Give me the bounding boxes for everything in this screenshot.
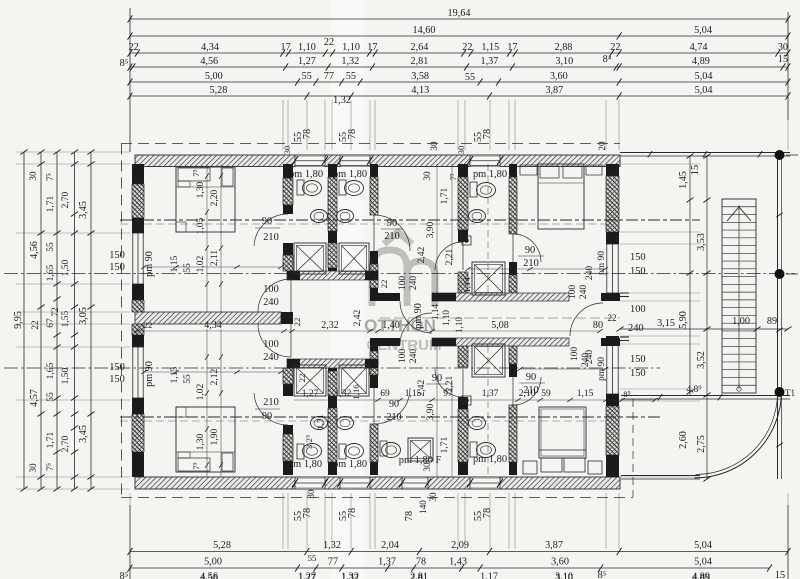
svg-text:1,32: 1,32 — [341, 56, 359, 67]
svg-text:pm 90: pm 90 — [144, 251, 155, 277]
svg-text:90: 90 — [262, 411, 272, 422]
svg-text:240: 240 — [409, 276, 419, 291]
svg-text:4,74: 4,74 — [690, 42, 708, 53]
svg-text:1,32: 1,32 — [333, 95, 351, 106]
svg-text:2,20: 2,20 — [210, 189, 220, 206]
svg-text:78: 78 — [404, 511, 415, 521]
svg-text:30: 30 — [28, 171, 38, 181]
svg-text:3,45: 3,45 — [78, 201, 89, 219]
svg-text:1,16: 1,16 — [351, 384, 361, 400]
svg-text:97: 97 — [443, 389, 453, 399]
svg-text:78: 78 — [416, 557, 426, 568]
svg-text:67: 67 — [46, 318, 56, 328]
svg-text:100: 100 — [398, 276, 408, 291]
svg-text:1,71: 1,71 — [46, 431, 56, 448]
svg-text:150: 150 — [109, 262, 125, 273]
svg-text:pm 1,80: pm 1,80 — [333, 459, 367, 470]
svg-text:1,10: 1,10 — [298, 42, 316, 53]
svg-text:4,34: 4,34 — [204, 320, 222, 331]
svg-text:78: 78 — [482, 508, 493, 518]
svg-text:210: 210 — [387, 412, 402, 423]
svg-text:1,15: 1,15 — [481, 42, 499, 53]
svg-text:5,28: 5,28 — [210, 85, 228, 96]
svg-text:90: 90 — [432, 373, 442, 384]
svg-text:78: 78 — [482, 129, 493, 139]
svg-text:22: 22 — [129, 42, 139, 53]
svg-text:100: 100 — [263, 339, 278, 350]
svg-text:210: 210 — [263, 232, 278, 243]
svg-text:pm 1,80 F: pm 1,80 F — [399, 455, 442, 466]
svg-text:5,00: 5,00 — [204, 557, 222, 568]
svg-text:pm 1,80: pm 1,80 — [288, 459, 322, 470]
svg-text:210: 210 — [263, 397, 278, 408]
svg-text:2,42: 2,42 — [417, 246, 427, 263]
svg-text:78: 78 — [347, 129, 358, 139]
svg-text:1,65: 1,65 — [46, 264, 56, 281]
svg-text:100: 100 — [263, 284, 278, 295]
svg-text:7⁵: 7⁵ — [191, 462, 201, 469]
svg-text:7⁵: 7⁵ — [46, 173, 56, 181]
svg-text:2,60: 2,60 — [678, 431, 689, 449]
svg-text:1,30: 1,30 — [196, 181, 206, 198]
svg-text:1,10: 1,10 — [454, 317, 464, 333]
svg-text:3,87: 3,87 — [545, 540, 563, 551]
svg-text:20: 20 — [597, 141, 607, 151]
svg-text:3,52: 3,52 — [696, 351, 707, 369]
svg-text:2,75: 2,75 — [696, 435, 707, 453]
svg-text:4,57: 4,57 — [29, 389, 40, 407]
svg-text:15: 15 — [775, 570, 785, 579]
svg-text:3,2⁵: 3,2⁵ — [304, 435, 314, 449]
svg-text:17: 17 — [281, 42, 291, 53]
svg-text:3,58: 3,58 — [411, 71, 429, 82]
svg-text:240: 240 — [263, 297, 278, 308]
svg-text:1,55: 1,55 — [61, 310, 71, 327]
svg-text:78: 78 — [302, 508, 313, 518]
svg-text:3,60: 3,60 — [550, 71, 568, 82]
svg-text:100: 100 — [568, 285, 578, 300]
svg-text:8⁵: 8⁵ — [623, 389, 630, 399]
svg-text:5,04: 5,04 — [694, 540, 712, 551]
svg-text:150: 150 — [630, 266, 646, 277]
svg-text:240: 240 — [263, 352, 278, 363]
svg-text:55: 55 — [308, 553, 317, 563]
svg-text:2,21: 2,21 — [445, 248, 455, 265]
svg-text:1,71: 1,71 — [46, 195, 56, 212]
svg-text:55: 55 — [183, 374, 193, 384]
svg-text:90: 90 — [262, 216, 272, 227]
svg-text:5,04: 5,04 — [695, 85, 713, 96]
svg-text:1,15: 1,15 — [405, 389, 422, 399]
svg-text:2,64: 2,64 — [411, 42, 429, 53]
svg-text:pm 1,80: pm 1,80 — [333, 169, 367, 180]
svg-text:1,27: 1,27 — [298, 573, 316, 579]
svg-text:77: 77 — [324, 71, 334, 82]
svg-text:30: 30 — [428, 492, 438, 502]
svg-text:5,04: 5,04 — [694, 557, 712, 568]
svg-text:240: 240 — [581, 353, 591, 368]
svg-text:55: 55 — [183, 263, 193, 273]
svg-text:22: 22 — [379, 280, 389, 289]
svg-text:55: 55 — [302, 71, 312, 82]
svg-text:1,14: 1,14 — [430, 304, 440, 320]
svg-text:1,37: 1,37 — [482, 389, 499, 399]
svg-text:2,70: 2,70 — [61, 435, 71, 452]
svg-text:1,15: 1,15 — [577, 389, 594, 399]
svg-text:55: 55 — [346, 71, 356, 82]
svg-text:1,90: 1,90 — [210, 428, 220, 445]
svg-text:1,37: 1,37 — [378, 557, 396, 568]
svg-text:150: 150 — [630, 252, 646, 263]
svg-text:1,00: 1,00 — [732, 316, 750, 327]
svg-text:22: 22 — [292, 318, 302, 327]
svg-text:4,89: 4,89 — [692, 573, 710, 579]
svg-text:1,05: 1,05 — [196, 217, 206, 234]
svg-text:2,70: 2,70 — [61, 191, 71, 208]
svg-text:1,17: 1,17 — [480, 572, 498, 579]
svg-text:140: 140 — [418, 500, 428, 514]
svg-text:100: 100 — [570, 347, 580, 362]
svg-text:90: 90 — [526, 372, 536, 383]
svg-text:17: 17 — [367, 42, 377, 53]
svg-text:1,50: 1,50 — [61, 367, 71, 384]
svg-text:210: 210 — [384, 231, 399, 242]
svg-text:59: 59 — [541, 389, 551, 399]
svg-text:240: 240 — [579, 285, 589, 300]
svg-text:3,15: 3,15 — [657, 318, 675, 329]
svg-text:30: 30 — [456, 145, 466, 154]
svg-text:1,65: 1,65 — [46, 362, 56, 379]
svg-text:8⁵: 8⁵ — [120, 571, 129, 579]
svg-text:1,15: 1,15 — [170, 255, 180, 272]
svg-text:3,90: 3,90 — [426, 221, 436, 238]
svg-text:30: 30 — [422, 171, 432, 181]
svg-text:30: 30 — [778, 42, 788, 53]
svg-text:55: 55 — [465, 72, 475, 83]
svg-text:80: 80 — [593, 320, 603, 331]
svg-text:4,56: 4,56 — [200, 573, 218, 579]
svg-text:150: 150 — [630, 354, 646, 365]
svg-text:1,45: 1,45 — [678, 171, 689, 189]
svg-text:1,32: 1,32 — [341, 573, 359, 579]
svg-text:1,30: 1,30 — [196, 433, 206, 450]
svg-text:1,32: 1,32 — [335, 389, 352, 399]
svg-text:1,27: 1,27 — [298, 56, 316, 67]
svg-text:8⁵: 8⁵ — [598, 570, 607, 579]
svg-text:2,32: 2,32 — [321, 320, 339, 331]
svg-text:2,81: 2,81 — [410, 573, 428, 579]
svg-text:4,13: 4,13 — [411, 85, 429, 96]
svg-text:2,09: 2,09 — [451, 540, 469, 551]
svg-text:78: 78 — [302, 129, 313, 139]
svg-text:1,14: 1,14 — [462, 277, 472, 293]
svg-text:pm 90: pm 90 — [597, 251, 607, 275]
svg-text:3,45: 3,45 — [78, 425, 89, 443]
svg-text:5,04: 5,04 — [694, 25, 712, 36]
svg-text:22: 22 — [144, 320, 153, 330]
svg-text:1,71: 1,71 — [440, 436, 450, 453]
svg-text:2,11: 2,11 — [210, 250, 220, 267]
svg-text:3,10: 3,10 — [555, 56, 573, 67]
svg-text:3,87: 3,87 — [545, 85, 563, 96]
svg-text:1,37: 1,37 — [481, 56, 499, 67]
svg-text:5,04: 5,04 — [695, 71, 713, 82]
svg-text:7³: 7³ — [448, 173, 458, 180]
svg-text:240: 240 — [628, 323, 644, 334]
svg-text:8⁴: 8⁴ — [603, 54, 612, 65]
svg-text:5,90: 5,90 — [678, 311, 689, 329]
svg-text:1,15: 1,15 — [170, 366, 180, 383]
svg-text:150: 150 — [630, 368, 646, 379]
svg-text:4,56: 4,56 — [200, 56, 218, 67]
svg-text:3,60: 3,60 — [551, 557, 569, 568]
svg-text:7⁵: 7⁵ — [46, 463, 56, 471]
svg-text:pm 90: pm 90 — [413, 303, 424, 329]
svg-text:4,89: 4,89 — [692, 56, 710, 67]
svg-text:150: 150 — [109, 362, 125, 373]
svg-text:30: 30 — [282, 145, 292, 154]
svg-text:pm 90: pm 90 — [144, 361, 155, 387]
svg-text:55: 55 — [46, 392, 56, 402]
svg-text:22: 22 — [30, 320, 40, 330]
svg-text:15: 15 — [778, 54, 788, 65]
svg-text:3,10: 3,10 — [555, 573, 573, 579]
svg-text:69: 69 — [380, 389, 390, 399]
svg-text:8⁵: 8⁵ — [120, 58, 129, 69]
svg-text:150: 150 — [109, 374, 125, 385]
svg-text:55: 55 — [46, 242, 56, 252]
svg-text:17: 17 — [507, 42, 517, 53]
svg-text:210: 210 — [523, 258, 538, 269]
svg-text:78: 78 — [347, 508, 358, 518]
svg-text:T1: T1 — [785, 388, 796, 398]
svg-text:2,42: 2,42 — [353, 309, 363, 326]
svg-text:90: 90 — [525, 245, 535, 256]
svg-text:4,8⁹: 4,8⁹ — [686, 385, 702, 395]
svg-text:1,71: 1,71 — [440, 187, 450, 204]
svg-text:30: 30 — [429, 141, 439, 151]
svg-text:1,02: 1,02 — [196, 383, 206, 400]
svg-text:2,88: 2,88 — [555, 42, 573, 53]
svg-text:pm 1,80: pm 1,80 — [289, 169, 323, 180]
svg-text:19,64: 19,64 — [448, 8, 471, 19]
svg-text:9,95: 9,95 — [13, 311, 24, 329]
svg-text:100: 100 — [630, 304, 646, 315]
svg-text:5,00: 5,00 — [205, 71, 223, 82]
svg-text:1,40: 1,40 — [382, 320, 400, 331]
svg-text:1,10: 1,10 — [342, 42, 360, 53]
svg-text:15: 15 — [690, 165, 701, 175]
svg-text:pm 1,80: pm 1,80 — [473, 169, 507, 180]
svg-text:14,60: 14,60 — [413, 25, 436, 36]
svg-text:3,53: 3,53 — [696, 233, 707, 251]
svg-text:22: 22 — [610, 42, 620, 53]
svg-text:pm 1,80: pm 1,80 — [473, 454, 507, 465]
svg-text:77: 77 — [328, 557, 338, 568]
svg-text:89: 89 — [767, 316, 777, 327]
svg-text:5,08: 5,08 — [491, 320, 509, 331]
svg-text:90: 90 — [387, 218, 397, 229]
svg-text:150: 150 — [109, 250, 125, 261]
svg-text:1,43: 1,43 — [449, 557, 467, 568]
svg-text:30: 30 — [28, 463, 38, 473]
svg-text:240: 240 — [409, 349, 419, 364]
svg-text:240: 240 — [585, 266, 595, 281]
svg-text:3,90: 3,90 — [426, 403, 436, 420]
svg-text:7⁵: 7⁵ — [191, 169, 201, 176]
svg-text:4,34: 4,34 — [201, 42, 219, 53]
svg-text:22: 22 — [297, 374, 307, 383]
svg-text:22: 22 — [324, 37, 334, 48]
svg-text:2,04: 2,04 — [381, 540, 399, 551]
svg-text:4,56: 4,56 — [29, 241, 40, 259]
svg-text:1,71: 1,71 — [315, 414, 325, 429]
svg-text:2,12: 2,12 — [210, 368, 220, 385]
svg-text:3,05: 3,05 — [78, 307, 89, 325]
svg-text:1,27: 1,27 — [302, 389, 319, 399]
svg-text:2,81: 2,81 — [411, 56, 429, 67]
svg-text:5,28: 5,28 — [213, 540, 231, 551]
svg-text:90: 90 — [389, 399, 399, 410]
svg-text:100: 100 — [398, 349, 408, 364]
svg-text:2,10: 2,10 — [519, 389, 536, 399]
svg-text:22: 22 — [462, 42, 472, 53]
svg-text:1,02: 1,02 — [196, 255, 206, 272]
